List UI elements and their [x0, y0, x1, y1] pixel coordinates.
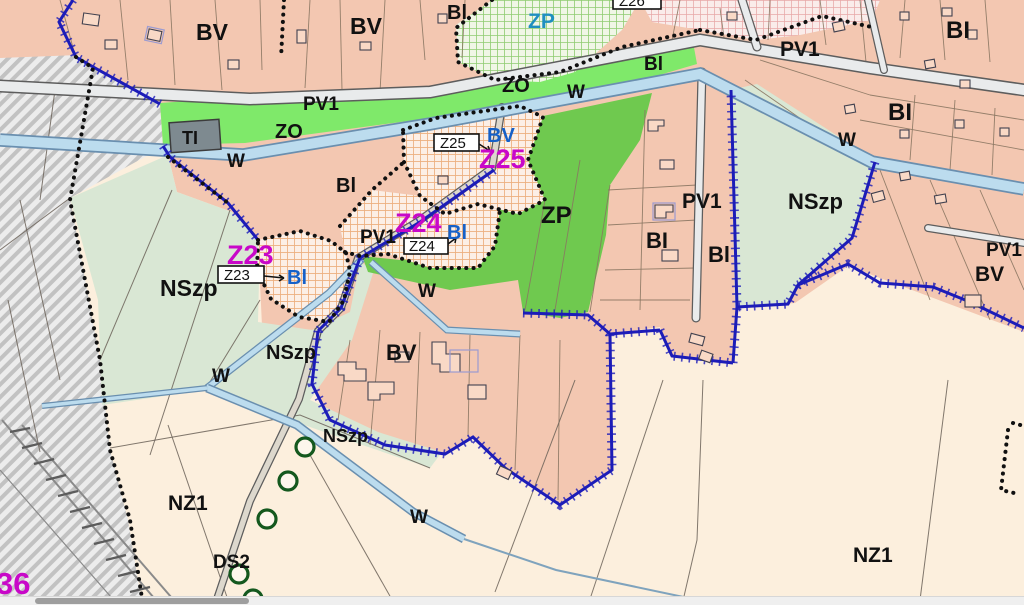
zone-label-zp-checkered: ZP: [528, 10, 555, 33]
zone-label-bi-center2: Bl: [708, 242, 730, 267]
zone-label-bi-mid: Bl: [336, 175, 356, 197]
zone-label-zo-mid: ZO: [502, 75, 530, 97]
z25-ref-label: Z25: [440, 135, 466, 152]
horizontal-scrollbar-thumb[interactable]: [35, 598, 249, 604]
zone-label-nz1-right: NZ1: [853, 544, 893, 567]
zone-label-bv-right: BV: [975, 263, 1004, 286]
zone-label-bi-topmid: Bl: [644, 54, 663, 75]
zone-label-w-1: W: [227, 151, 245, 172]
zone-label-nszp-mid: NSzp: [266, 342, 316, 364]
zone-label-w-5: W: [418, 281, 436, 302]
zone-label-z24: Z24: [395, 208, 442, 238]
zone-label-pv1-top: PV1: [780, 38, 820, 61]
horizontal-scrollbar[interactable]: [0, 596, 1024, 605]
z24-ref-label: Z24: [409, 238, 435, 255]
zone-label-z23: Z23: [227, 240, 274, 270]
zone-label-ds2: DS2: [213, 552, 250, 573]
zone-label-ti: TI: [182, 128, 198, 148]
zone-label-zp-main: ZP: [541, 202, 572, 229]
zone-label-pv1-right: PV1: [986, 240, 1022, 261]
zone-label-bv-topleft: BV: [196, 19, 229, 45]
zone-label-nz1-left: NZ1: [168, 492, 208, 515]
zone-label-bv-top: BV: [350, 13, 383, 39]
zone-label-pv1-center: PV1: [682, 190, 722, 213]
zone-label-pv1-left: PV1: [303, 94, 339, 115]
zone-label-bl-z23: Bl: [287, 267, 307, 289]
zone-label-w-6: W: [410, 507, 428, 528]
zone-label-w-4: W: [212, 366, 230, 387]
zone-label-z25: Z25: [479, 144, 526, 174]
zone-label-w-3: W: [838, 130, 856, 151]
zone-label-bi-center: BI: [646, 228, 668, 253]
zone-label-nszp-left: NSzp: [160, 275, 218, 301]
zone-label-bl-z24: Bl: [447, 222, 467, 244]
map-viewport: Z23 Z24 Z25 Z26 BV BV Bl Bl BI BI Bl BI …: [0, 0, 1024, 605]
zone-label-nszp-right: NSzp: [788, 189, 843, 214]
zone-label-bv-blob: BV: [386, 340, 417, 365]
z26-ref-label: Z26: [619, 0, 645, 10]
zone-label-pv1-mid: PV1: [360, 227, 396, 248]
zone-label-bv-z25: BV: [487, 125, 515, 147]
zone-label-w-2: W: [567, 82, 585, 103]
zone-label-zo-left: ZO: [275, 121, 303, 143]
zone-label-bi-top: Bl: [447, 2, 467, 24]
zone-label-bi-right: BI: [888, 99, 912, 126]
zone-label-nszp-south: NSzp: [323, 426, 368, 446]
zone-label-bi-topright: BI: [946, 17, 970, 44]
zoning-map-canvas[interactable]: Z23 Z24 Z25 Z26 BV BV Bl Bl BI BI Bl BI …: [0, 0, 1024, 605]
